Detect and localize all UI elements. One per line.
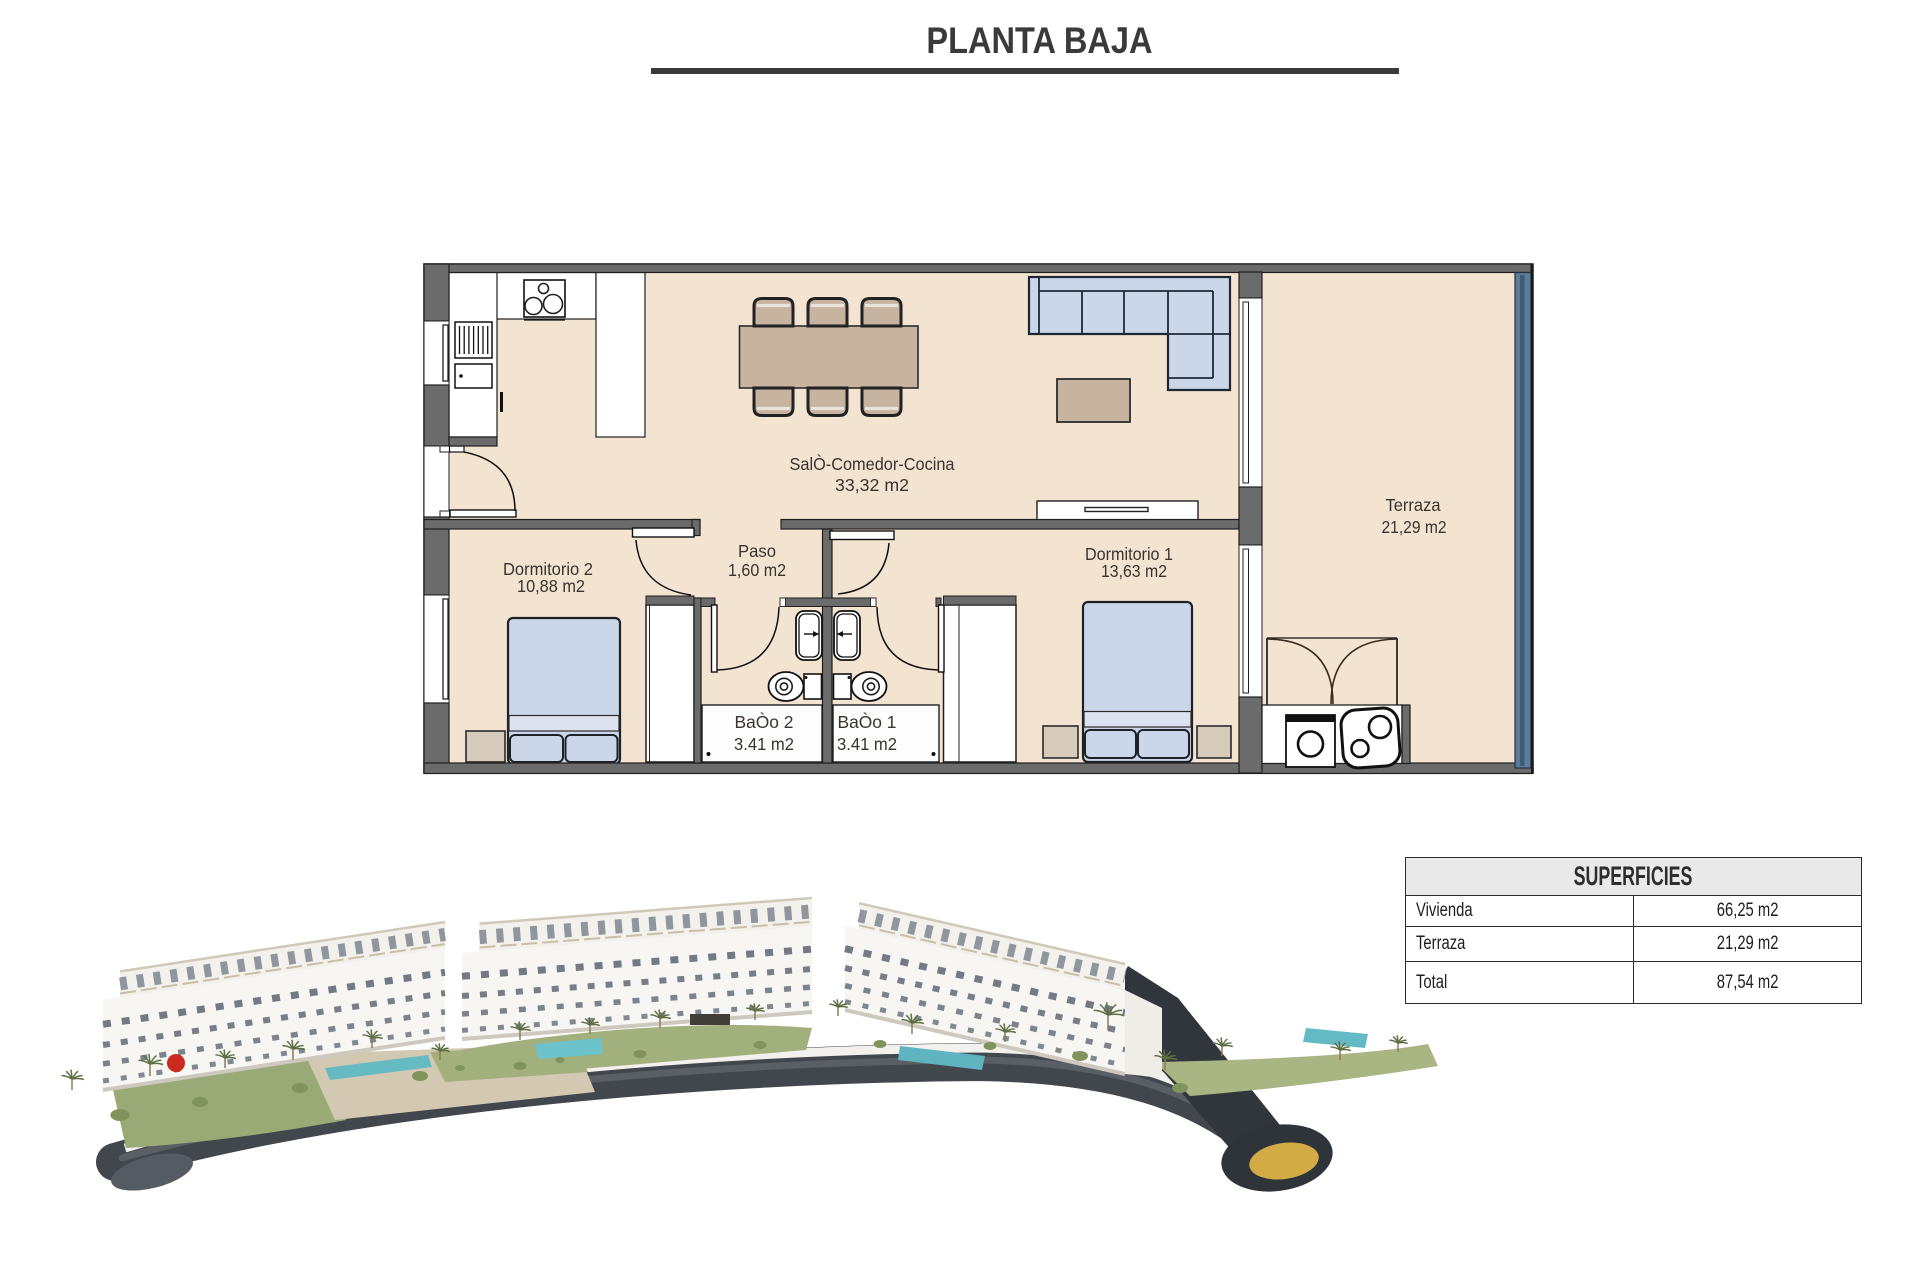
svg-text:Terraza: Terraza — [1386, 495, 1441, 515]
svg-text:10,88 m2: 10,88 m2 — [517, 576, 585, 596]
svg-text:33,32 m2: 33,32 m2 — [835, 475, 909, 495]
svg-text:1,60 m2: 1,60 m2 — [728, 560, 786, 580]
svg-text:Paso: Paso — [738, 541, 776, 561]
svg-text:3.41 m2: 3.41 m2 — [734, 734, 794, 754]
svg-text:13,63 m2: 13,63 m2 — [1101, 561, 1167, 581]
svg-text:3.41 m2: 3.41 m2 — [837, 734, 897, 754]
svg-text:21,29 m2: 21,29 m2 — [1382, 517, 1447, 537]
svg-text:BaÒo 2: BaÒo 2 — [735, 711, 794, 732]
svg-text:BaÒo 1: BaÒo 1 — [838, 711, 897, 732]
svg-text:SalÒ-Comedor-Cocina: SalÒ-Comedor-Cocina — [790, 453, 955, 474]
